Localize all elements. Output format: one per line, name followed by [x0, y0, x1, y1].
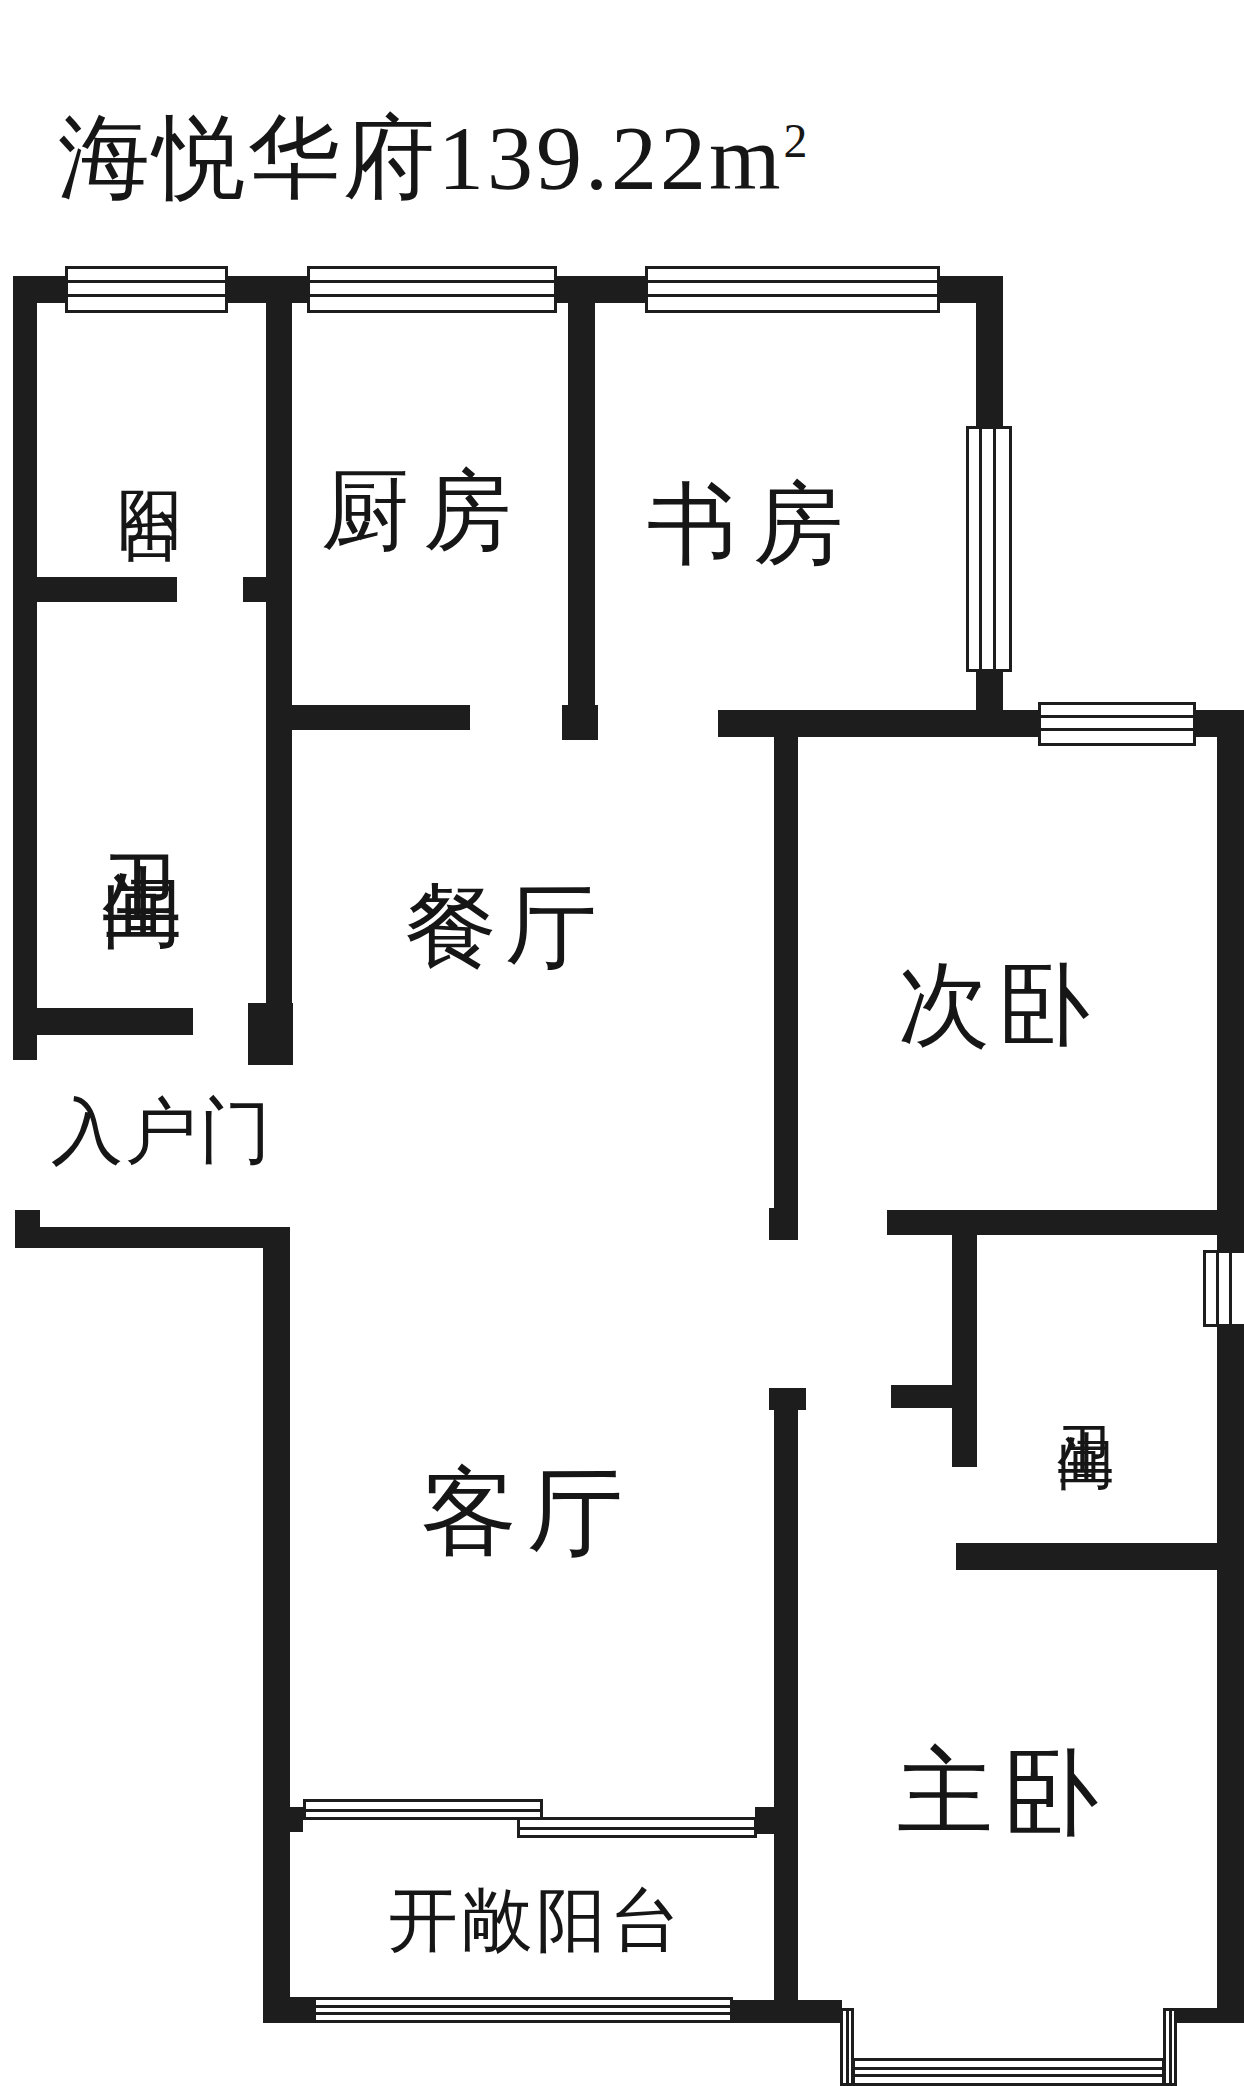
room-label-living: 客厅	[421, 1463, 633, 1563]
wall-balcony-bath-divider-b	[243, 577, 268, 602]
wall-southwest-foot	[263, 1997, 315, 2023]
window-balcony-south	[313, 1997, 733, 2023]
wall-bath2-south	[956, 1543, 1244, 1570]
room-label-kitchen: 厨房	[321, 466, 525, 558]
window-bedroom2-north	[1038, 702, 1196, 746]
wall-kitchen-south	[266, 705, 470, 730]
plan-title-unit: m	[709, 107, 784, 209]
wall-bedroom2-west-foot	[769, 1208, 798, 1240]
wall-living-master	[774, 1388, 798, 2023]
window-bath2-east	[1203, 1250, 1244, 1327]
window-master-jamb-right	[1163, 2008, 1177, 2086]
wall-living-master-head	[769, 1388, 806, 1410]
window-living-balcony-lower	[517, 1817, 757, 1838]
wall-balcony-door-block	[755, 1807, 775, 1834]
room-label-study: 书房	[647, 478, 859, 572]
wall-kitchen-study-foot	[562, 705, 598, 740]
room-label-dining: 餐厅	[405, 880, 605, 976]
wall-balcony-bath-east-foot	[248, 1003, 293, 1065]
window-kitchen	[307, 266, 557, 313]
floor-plan: 海悦华府139.22m2	[0, 0, 1244, 2086]
wall-bath2-ell	[891, 1385, 952, 1408]
room-label-entry-door: 入户门	[51, 1095, 273, 1170]
plan-title-sup: 2	[784, 114, 808, 167]
wall-balcony-bath-east	[266, 303, 292, 1065]
wall-south-bar	[733, 2000, 842, 2023]
wall-living-northwest	[15, 1227, 290, 1248]
wall-bath2-west	[952, 1235, 977, 1467]
wall-east	[1217, 710, 1244, 2023]
wall-living-west	[263, 1227, 290, 2022]
plan-title: 海悦华府139.22m2	[58, 96, 807, 220]
room-label-bathroom-north: 卫生间	[100, 792, 183, 816]
wall-southeast-seg	[1177, 2008, 1244, 2023]
wall-bedroom2-west	[774, 737, 798, 1208]
wall-bath2-north	[887, 1210, 1244, 1235]
room-label-bedroom-second: 次卧	[898, 958, 1098, 1054]
room-label-bathroom-south: 卫生间	[1056, 1381, 1115, 1393]
room-label-bedroom-master: 主卧	[897, 1743, 1109, 1843]
window-living-balcony-upper	[303, 1799, 543, 1820]
wall-bath1-south	[13, 1008, 193, 1035]
plan-title-text: 海悦华府139.22	[58, 107, 709, 209]
room-label-balcony-south: 开敞阳台	[388, 1885, 684, 1958]
wall-west	[13, 276, 37, 1060]
wall-living-west-step	[290, 1807, 303, 1832]
room-label-balcony-north: 阳台	[116, 439, 185, 451]
wall-kitchen-study	[568, 303, 595, 705]
window-study-east	[966, 426, 1012, 672]
wall-balcony-bath-divider-a	[37, 577, 177, 602]
window-master-south	[852, 2058, 1165, 2086]
window-balcony-north	[65, 266, 228, 313]
window-study-north	[645, 266, 940, 313]
